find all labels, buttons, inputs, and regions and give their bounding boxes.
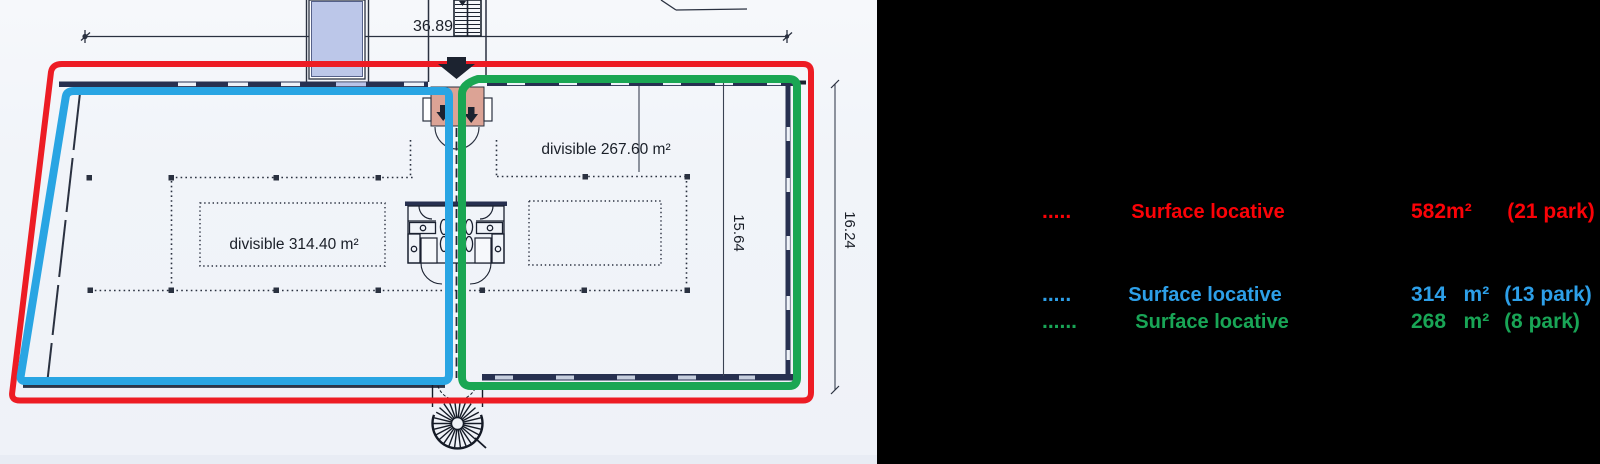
svg-text:(13 park): (13 park) <box>1504 283 1592 306</box>
svg-text:divisible 267.60 m²: divisible 267.60 m² <box>541 141 670 158</box>
svg-text:divisible 314.40 m²: divisible 314.40 m² <box>229 236 358 253</box>
svg-text:(21 park): (21 park) <box>1507 200 1595 223</box>
svg-text:......: ...... <box>1042 310 1077 333</box>
svg-text:582m²: 582m² <box>1411 200 1472 223</box>
svg-text:314 m²: 314 m² <box>1411 283 1489 306</box>
svg-text:268 m²: 268 m² <box>1411 310 1489 333</box>
svg-text:16.24: 16.24 <box>841 211 858 249</box>
svg-text:.....: ..... <box>1042 283 1071 306</box>
svg-text:Surface locative: Surface locative <box>1128 284 1281 306</box>
svg-text:.....: ..... <box>1042 200 1071 223</box>
svg-text:(8 park): (8 park) <box>1504 310 1580 333</box>
svg-text:Surface locative: Surface locative <box>1131 201 1284 223</box>
svg-text:36.89: 36.89 <box>413 18 453 35</box>
svg-text:Surface locative: Surface locative <box>1135 311 1288 333</box>
svg-text:15.64: 15.64 <box>730 214 747 252</box>
